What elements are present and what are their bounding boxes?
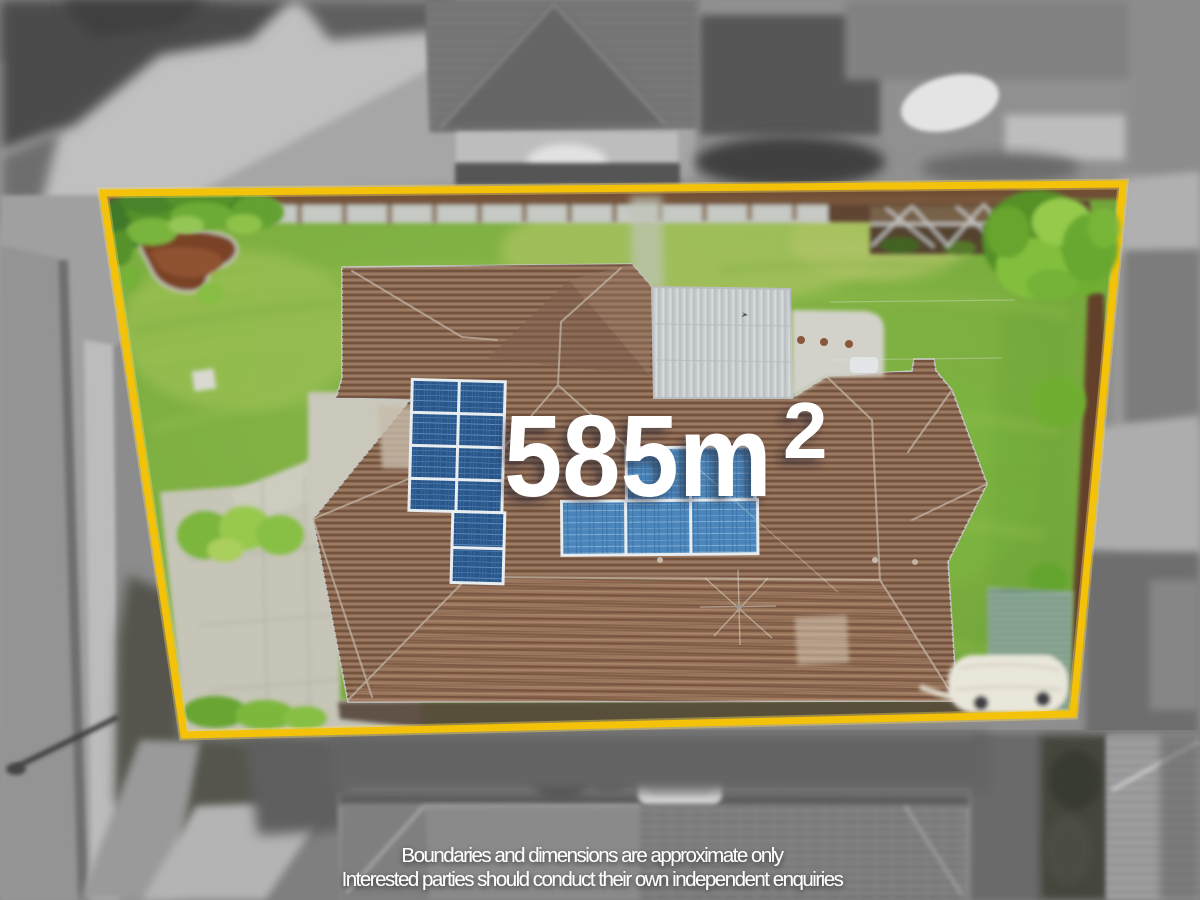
- svg-text:585m: 585m: [504, 392, 772, 521]
- svg-text:Interested parties should cond: Interested parties should conduct their …: [342, 868, 844, 891]
- svg-text:2: 2: [783, 386, 828, 475]
- svg-text:Boundaries and dimensions are: Boundaries and dimensions are approximat…: [401, 844, 784, 867]
